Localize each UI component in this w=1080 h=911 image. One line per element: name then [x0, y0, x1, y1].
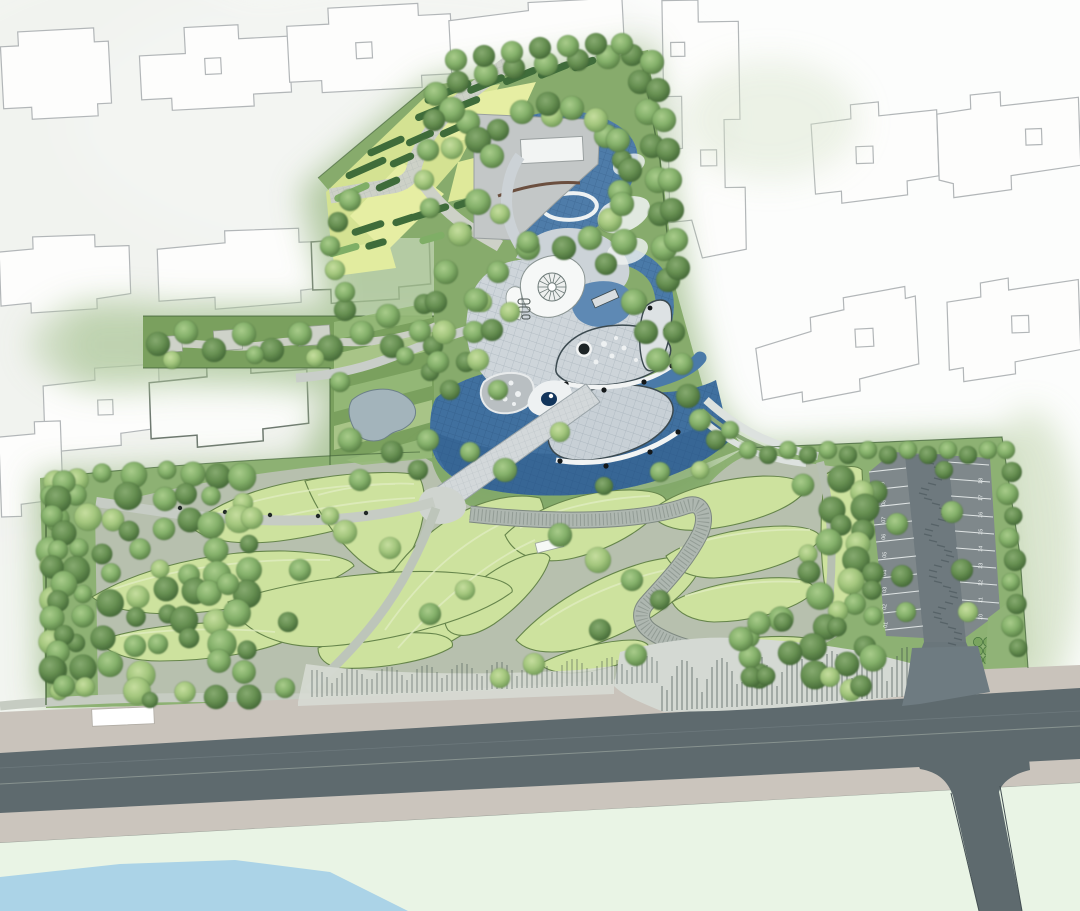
svg-text:18: 18	[978, 478, 985, 485]
svg-text:10: 10	[978, 614, 985, 621]
svg-text:05: 05	[882, 552, 889, 559]
svg-text:11: 11	[978, 597, 984, 603]
svg-text:17: 17	[978, 495, 985, 502]
svg-text:01: 01	[883, 622, 890, 629]
svg-text:03: 03	[882, 587, 889, 594]
svg-text:15: 15	[978, 529, 985, 536]
svg-text:02: 02	[882, 604, 889, 611]
svg-text:14: 14	[978, 546, 985, 553]
svg-text:12: 12	[978, 580, 985, 587]
svg-text:06: 06	[881, 534, 888, 541]
svg-text:16: 16	[978, 512, 985, 519]
svg-text:13: 13	[978, 563, 985, 570]
